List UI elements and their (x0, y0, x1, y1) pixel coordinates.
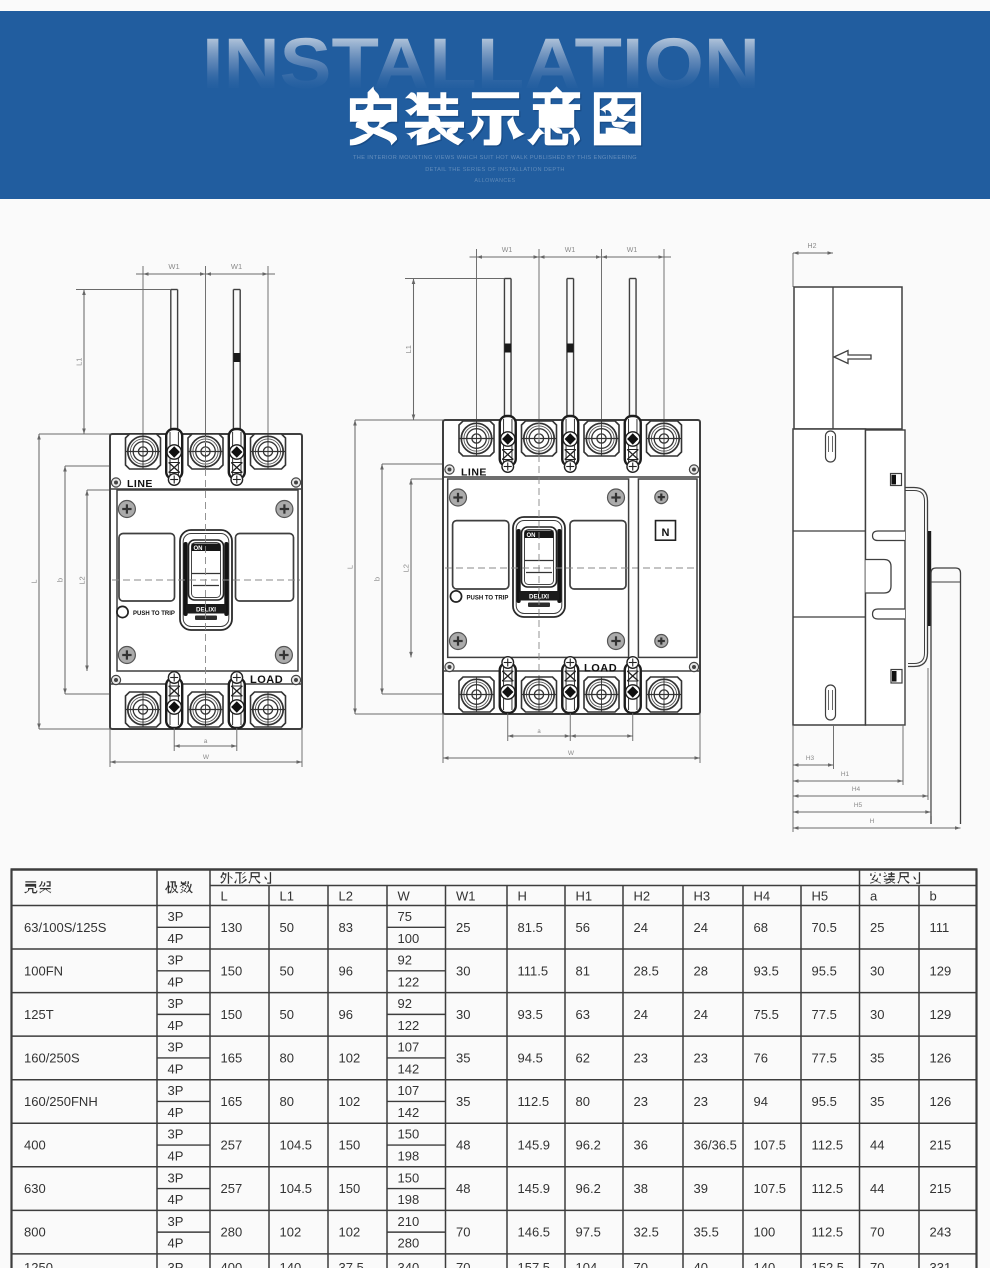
svg-text:LINE: LINE (461, 467, 487, 479)
svg-text:165: 165 (221, 1051, 243, 1066)
svg-text:39: 39 (694, 1181, 708, 1196)
svg-text:70: 70 (456, 1260, 470, 1268)
svg-text:H2: H2 (634, 889, 651, 904)
svg-text:102: 102 (339, 1225, 361, 1240)
svg-text:3P: 3P (168, 1127, 184, 1142)
svg-text:48: 48 (456, 1181, 470, 1196)
svg-text:93.5: 93.5 (518, 1007, 543, 1022)
svg-text:102: 102 (339, 1051, 361, 1066)
svg-text:280: 280 (398, 1236, 420, 1251)
svg-text:23: 23 (694, 1051, 708, 1066)
svg-text:L2: L2 (402, 564, 411, 572)
svg-text:3P: 3P (168, 1214, 184, 1229)
svg-text:L: L (346, 565, 355, 569)
svg-text:75.5: 75.5 (754, 1007, 779, 1022)
svg-text:70.5: 70.5 (812, 920, 837, 935)
svg-text:H3: H3 (694, 889, 711, 904)
svg-text:1250: 1250 (24, 1260, 53, 1268)
svg-text:L: L (221, 889, 228, 904)
svg-text:30: 30 (870, 963, 884, 978)
svg-text:142: 142 (398, 1061, 420, 1076)
svg-text:150: 150 (339, 1138, 361, 1153)
svg-text:146.5: 146.5 (518, 1225, 551, 1240)
svg-text:112.5: 112.5 (812, 1138, 844, 1153)
svg-text:W: W (203, 754, 210, 761)
svg-text:H: H (870, 818, 875, 825)
svg-text:800: 800 (24, 1225, 46, 1240)
svg-text:94.5: 94.5 (518, 1051, 543, 1066)
svg-text:W1: W1 (502, 247, 513, 254)
svg-text:340: 340 (398, 1260, 420, 1268)
svg-text:H4: H4 (754, 889, 771, 904)
svg-text:ALLOWANCES: ALLOWANCES (474, 178, 515, 184)
svg-text:H5: H5 (854, 802, 863, 809)
svg-text:50: 50 (280, 963, 294, 978)
svg-text:150: 150 (221, 963, 243, 978)
svg-text:142: 142 (398, 1105, 420, 1120)
svg-text:L1: L1 (280, 889, 294, 904)
svg-text:ON: ON (194, 546, 203, 552)
svg-text:b: b (373, 577, 382, 581)
svg-text:PUSH TO TRIP: PUSH TO TRIP (467, 596, 509, 602)
svg-text:4P: 4P (168, 1105, 184, 1120)
svg-text:107: 107 (398, 1040, 420, 1055)
svg-text:N: N (662, 527, 670, 539)
svg-text:3P: 3P (168, 909, 184, 924)
svg-text:80: 80 (280, 1051, 294, 1066)
svg-text:W1: W1 (456, 889, 476, 904)
svg-text:4P: 4P (168, 1061, 184, 1076)
svg-text:H3: H3 (806, 755, 815, 762)
svg-text:160/250FNH: 160/250FNH (24, 1094, 98, 1109)
svg-text:93.5: 93.5 (754, 963, 779, 978)
svg-text:H4: H4 (852, 786, 861, 793)
svg-text:30: 30 (456, 1007, 470, 1022)
svg-text:80: 80 (280, 1094, 294, 1109)
svg-text:81: 81 (576, 963, 590, 978)
svg-text:4P: 4P (168, 1018, 184, 1033)
svg-text:140: 140 (754, 1260, 776, 1268)
svg-text:331: 331 (930, 1260, 952, 1268)
svg-text:107: 107 (398, 1083, 420, 1098)
svg-text:77.5: 77.5 (812, 1051, 837, 1066)
svg-text:126: 126 (930, 1051, 952, 1066)
svg-text:94: 94 (754, 1094, 768, 1109)
svg-text:30: 30 (456, 963, 470, 978)
svg-text:102: 102 (280, 1225, 302, 1240)
svg-text:100: 100 (398, 931, 420, 946)
svg-text:630: 630 (24, 1181, 46, 1196)
svg-text:130: 130 (221, 920, 243, 935)
svg-text:32.5: 32.5 (634, 1225, 659, 1240)
svg-text:PUSH TO TRIP: PUSH TO TRIP (133, 611, 175, 617)
svg-text:DETAIL THE SERIES OF INSTALLAT: DETAIL THE SERIES OF INSTALLATION DEPTH (425, 167, 565, 173)
svg-text:48: 48 (456, 1138, 470, 1153)
svg-text:L1: L1 (404, 345, 413, 353)
svg-text:107.5: 107.5 (754, 1138, 787, 1153)
svg-text:70: 70 (870, 1260, 884, 1268)
svg-text:LOAD: LOAD (584, 663, 617, 675)
svg-text:257: 257 (221, 1138, 243, 1153)
svg-text:H5: H5 (812, 889, 829, 904)
svg-text:35: 35 (870, 1051, 884, 1066)
svg-text:23: 23 (694, 1094, 708, 1109)
svg-text:44: 44 (870, 1138, 884, 1153)
svg-text:INSTALLATION: INSTALLATION (202, 25, 760, 104)
svg-text:160/250S: 160/250S (24, 1051, 80, 1066)
svg-text:129: 129 (930, 1007, 952, 1022)
svg-text:50: 50 (280, 920, 294, 935)
svg-text:b: b (56, 578, 65, 582)
svg-text:63/100S/125S: 63/100S/125S (24, 920, 107, 935)
svg-text:25: 25 (870, 920, 884, 935)
svg-text:36/36.5: 36/36.5 (694, 1138, 737, 1153)
svg-text:b: b (930, 889, 937, 904)
svg-text:W1: W1 (168, 262, 179, 271)
svg-text:104.5: 104.5 (280, 1138, 313, 1153)
svg-text:122: 122 (398, 1018, 420, 1033)
svg-text:63: 63 (576, 1007, 590, 1022)
svg-text:145.9: 145.9 (518, 1138, 551, 1153)
svg-text:76: 76 (754, 1051, 768, 1066)
svg-text:150: 150 (339, 1181, 361, 1196)
svg-text:96.2: 96.2 (576, 1138, 601, 1153)
svg-text:L: L (30, 579, 39, 583)
svg-text:62: 62 (576, 1051, 590, 1066)
svg-text:92: 92 (398, 996, 412, 1011)
svg-text:L2: L2 (339, 889, 353, 904)
svg-text:LOAD: LOAD (250, 674, 283, 686)
svg-text:24: 24 (634, 1007, 648, 1022)
svg-text:W1: W1 (565, 247, 576, 254)
svg-text:150: 150 (221, 1007, 243, 1022)
svg-text:4P: 4P (168, 1149, 184, 1164)
svg-text:35: 35 (456, 1094, 470, 1109)
svg-text:198: 198 (398, 1149, 420, 1164)
svg-text:80: 80 (576, 1094, 590, 1109)
svg-text:3P: 3P (168, 953, 184, 968)
svg-text:37.5: 37.5 (339, 1260, 364, 1268)
svg-text:30: 30 (870, 1007, 884, 1022)
svg-text:25: 25 (456, 920, 470, 935)
svg-text:97.5: 97.5 (576, 1225, 601, 1240)
svg-text:THE INTERIOR MOUNTING VIEWS WH: THE INTERIOR MOUNTING VIEWS WHICH SUIT H… (353, 155, 637, 161)
svg-text:140: 140 (280, 1260, 302, 1268)
svg-text:77.5: 77.5 (812, 1007, 837, 1022)
svg-text:96: 96 (339, 963, 353, 978)
svg-text:L2: L2 (78, 576, 87, 584)
svg-text:38: 38 (634, 1181, 648, 1196)
svg-text:H2: H2 (808, 243, 817, 250)
svg-text:24: 24 (694, 920, 708, 935)
svg-text:111: 111 (930, 920, 950, 935)
svg-text:28.5: 28.5 (634, 963, 659, 978)
svg-text:a: a (870, 889, 878, 904)
svg-text:H1: H1 (576, 889, 593, 904)
svg-text:95.5: 95.5 (812, 1094, 837, 1109)
svg-text:145.9: 145.9 (518, 1181, 551, 1196)
svg-text:40: 40 (694, 1260, 708, 1268)
svg-text:4P: 4P (168, 1236, 184, 1251)
svg-text:107.5: 107.5 (754, 1181, 787, 1196)
svg-text:150: 150 (398, 1127, 420, 1142)
svg-text:24: 24 (634, 920, 648, 935)
svg-text:70: 70 (634, 1260, 648, 1268)
svg-text:50: 50 (280, 1007, 294, 1022)
svg-text:102: 102 (339, 1094, 361, 1109)
svg-text:215: 215 (930, 1181, 952, 1196)
svg-text:95.5: 95.5 (812, 963, 837, 978)
svg-text:400: 400 (24, 1138, 46, 1153)
svg-text:92: 92 (398, 953, 412, 968)
svg-text:W: W (568, 750, 575, 757)
svg-text:210: 210 (398, 1214, 420, 1229)
svg-text:LINE: LINE (127, 478, 153, 490)
svg-text:257: 257 (221, 1181, 243, 1196)
svg-text:a: a (204, 738, 208, 745)
svg-text:3P: 3P (168, 1083, 184, 1098)
svg-text:280: 280 (221, 1225, 243, 1240)
svg-text:W1: W1 (231, 262, 242, 271)
svg-text:104.5: 104.5 (280, 1181, 313, 1196)
svg-text:112.5: 112.5 (812, 1225, 844, 1240)
svg-text:150: 150 (398, 1170, 420, 1185)
svg-text:68: 68 (754, 920, 768, 935)
svg-text:W: W (398, 889, 411, 904)
svg-text:70: 70 (870, 1225, 884, 1240)
svg-text:3P: 3P (168, 996, 184, 1011)
svg-text:44: 44 (870, 1181, 884, 1196)
svg-text:35.5: 35.5 (694, 1225, 719, 1240)
svg-text:4P: 4P (168, 974, 184, 989)
svg-text:198: 198 (398, 1192, 420, 1207)
svg-text:23: 23 (634, 1051, 648, 1066)
svg-text:112.5: 112.5 (518, 1094, 550, 1109)
svg-text:129: 129 (930, 963, 952, 978)
svg-text:126: 126 (930, 1094, 952, 1109)
svg-text:400: 400 (221, 1260, 243, 1268)
svg-text:100: 100 (754, 1225, 776, 1240)
svg-text:35: 35 (870, 1094, 884, 1109)
svg-text:112.5: 112.5 (812, 1181, 844, 1196)
svg-text:125T: 125T (24, 1007, 54, 1022)
svg-text:28: 28 (694, 963, 708, 978)
svg-text:152.5: 152.5 (812, 1260, 845, 1268)
svg-text:56: 56 (576, 920, 590, 935)
svg-text:157.5: 157.5 (518, 1260, 551, 1268)
svg-text:100FN: 100FN (24, 963, 63, 978)
svg-text:H1: H1 (841, 771, 850, 778)
svg-text:23: 23 (634, 1094, 648, 1109)
svg-text:75: 75 (398, 909, 412, 924)
svg-text:96: 96 (339, 1007, 353, 1022)
svg-text:83: 83 (339, 920, 353, 935)
svg-text:122: 122 (398, 974, 420, 989)
svg-text:111.5: 111.5 (518, 963, 549, 978)
svg-text:70: 70 (456, 1225, 470, 1240)
svg-text:4P: 4P (168, 931, 184, 946)
svg-text:96.2: 96.2 (576, 1181, 601, 1196)
svg-text:24: 24 (694, 1007, 708, 1022)
svg-text:DELIXI: DELIXI (196, 606, 216, 613)
svg-text:3P: 3P (168, 1040, 184, 1055)
svg-text:243: 243 (930, 1225, 952, 1240)
svg-text:3P: 3P (168, 1170, 184, 1185)
svg-text:ON: ON (527, 533, 536, 539)
svg-text:81.5: 81.5 (518, 920, 543, 935)
svg-text:165: 165 (221, 1094, 243, 1109)
svg-text:35: 35 (456, 1051, 470, 1066)
svg-text:W1: W1 (627, 247, 638, 254)
svg-text:104: 104 (576, 1260, 598, 1268)
svg-text:L1: L1 (75, 358, 84, 366)
svg-text:215: 215 (930, 1138, 952, 1153)
svg-text:36: 36 (634, 1138, 648, 1153)
svg-text:3P: 3P (168, 1260, 184, 1268)
svg-text:4P: 4P (168, 1192, 184, 1207)
svg-text:H: H (518, 889, 527, 904)
